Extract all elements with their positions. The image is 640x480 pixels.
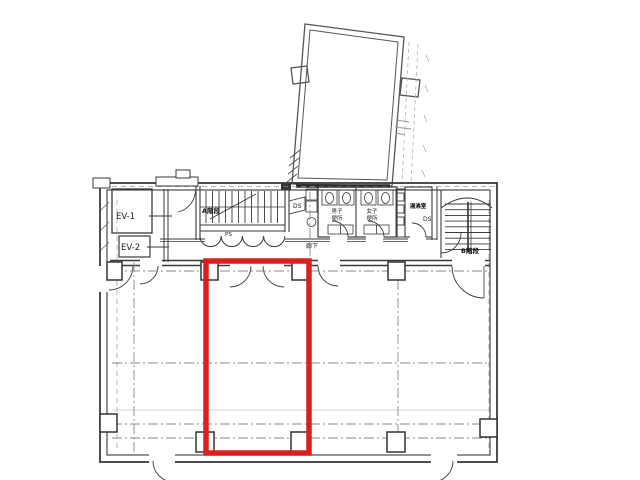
corridor-label: 廊下 (306, 242, 318, 250)
stair-a-label: A階段 (202, 206, 221, 215)
duct-a-label: DS (293, 203, 302, 210)
duct-b-label: DS (423, 216, 432, 223)
left-wall-hatch (101, 202, 109, 250)
corridor-openings (140, 258, 485, 268)
pillars (100, 262, 497, 452)
annex-outline (291, 24, 420, 186)
mens-toilet-label-2: 便所 (331, 214, 343, 222)
floor-plan-canvas: EV-1 EV-2 A階段 DS PS (0, 0, 640, 480)
vestibule-fixtures (306, 189, 317, 227)
kitchenette-room (405, 187, 437, 240)
stair-a-door-arc (178, 189, 196, 212)
pipe-shaft-label: PS (225, 232, 232, 238)
floor-plan-drawing: EV-1 EV-2 A階段 DS PS (0, 0, 640, 480)
annex-faint-lines (402, 42, 418, 184)
womens-toilet-label-2: 便所 (366, 214, 378, 222)
elevator-2-label: EV-2 (121, 243, 140, 253)
annex-right-notch (400, 78, 420, 97)
kitchenette-label: 湯沸室 (410, 202, 427, 210)
elevator-1-label: EV-1 (116, 212, 135, 222)
top-protrusions (93, 170, 198, 188)
toilet-block (318, 187, 397, 239)
womens-toilet-label-1: 女子 (366, 207, 378, 215)
mens-toilet-label-1: 男子 (331, 208, 343, 215)
stair-a (178, 186, 305, 247)
stair-b-label: B階段 (461, 246, 479, 255)
